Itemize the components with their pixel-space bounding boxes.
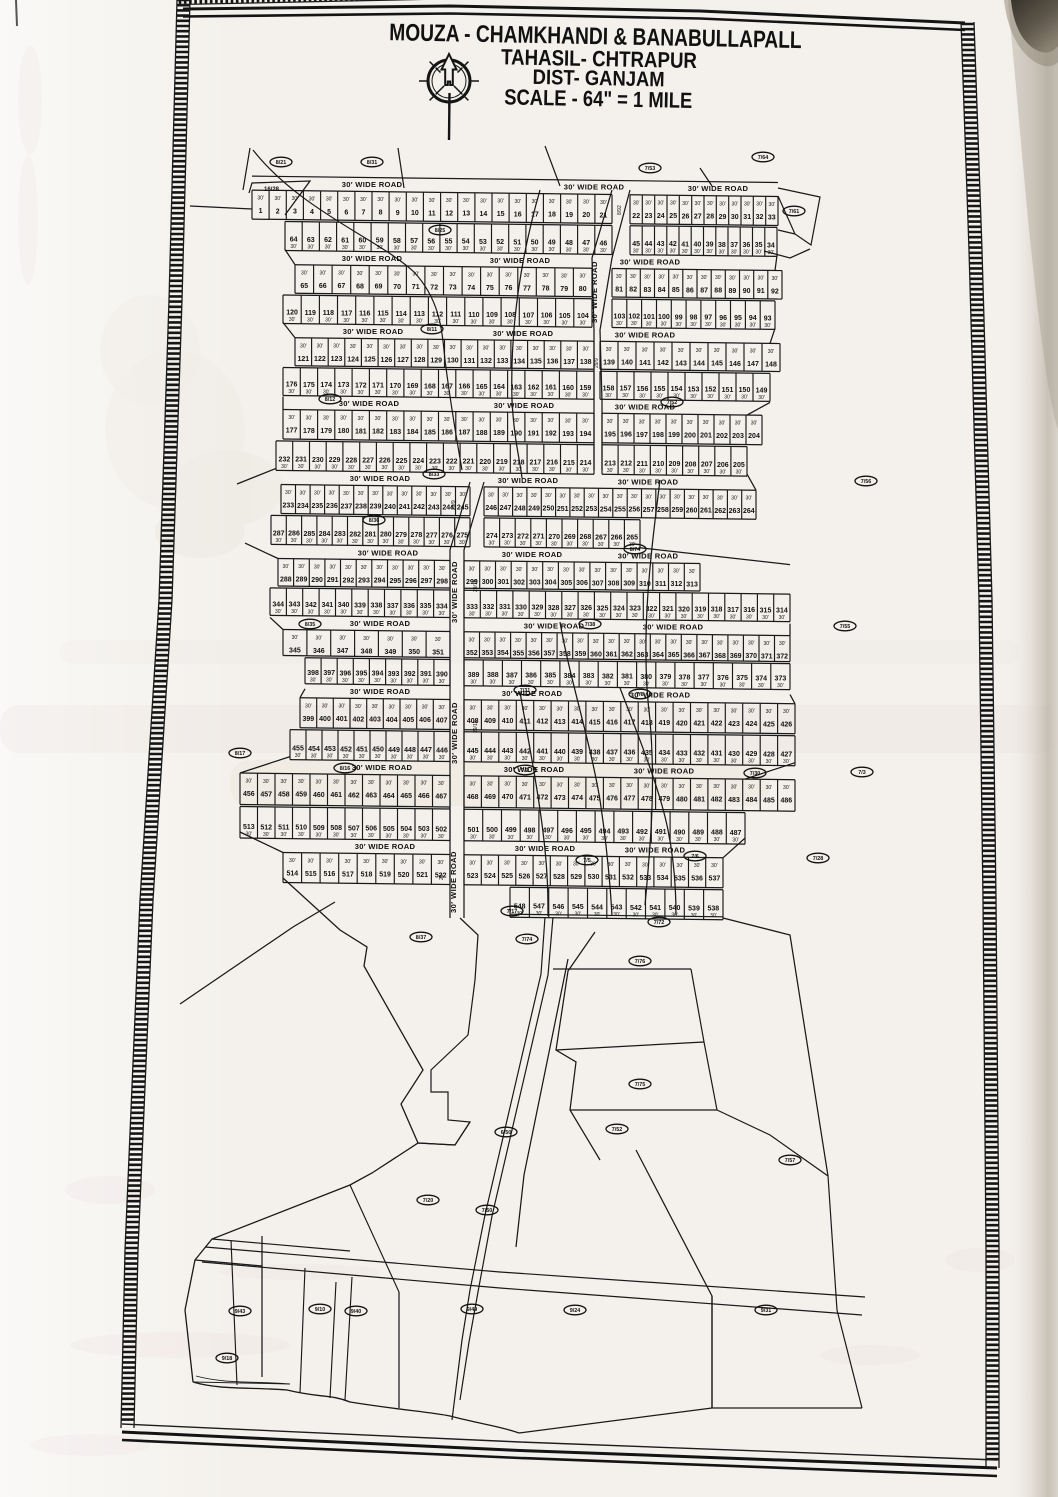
svg-text:30′: 30′ (687, 420, 694, 426)
svg-text:30′: 30′ (566, 346, 573, 352)
svg-text:30′: 30′ (732, 640, 739, 646)
svg-text:30′: 30′ (400, 345, 407, 351)
svg-text:30′: 30′ (642, 347, 649, 353)
svg-text:230: 230 (312, 457, 324, 464)
svg-text:78: 78 (542, 286, 550, 293)
svg-text:82: 82 (629, 287, 637, 294)
svg-text:30′: 30′ (766, 785, 773, 791)
svg-text:30′: 30′ (307, 317, 314, 323)
svg-text:445: 445 (467, 748, 479, 755)
svg-text:30′: 30′ (565, 418, 572, 424)
svg-text:30′: 30′ (657, 837, 664, 843)
svg-text:87: 87 (700, 288, 708, 295)
svg-text:30′: 30′ (246, 779, 253, 785)
svg-text:30′: 30′ (375, 390, 382, 396)
svg-text:346: 346 (313, 648, 325, 655)
svg-text:63: 63 (307, 237, 315, 244)
svg-text:249: 249 (528, 506, 540, 513)
svg-text:30′: 30′ (543, 320, 550, 326)
svg-text:30′: 30′ (459, 540, 466, 546)
svg-text:30′: 30′ (639, 639, 646, 645)
svg-text:128: 128 (414, 357, 426, 364)
svg-text:246: 246 (485, 505, 497, 512)
svg-text:30′: 30′ (345, 565, 352, 571)
svg-text:30′ WIDE ROAD: 30′ WIDE ROAD (494, 401, 555, 410)
svg-text:30′: 30′ (642, 862, 649, 868)
svg-text:30′: 30′ (383, 539, 390, 545)
svg-text:38: 38 (718, 242, 726, 249)
svg-text:30′: 30′ (469, 611, 476, 617)
svg-text:30′: 30′ (583, 613, 590, 619)
svg-text:470: 470 (502, 794, 514, 801)
svg-text:30′: 30′ (308, 858, 315, 864)
svg-text:219: 219 (496, 459, 508, 466)
svg-text:66: 66 (319, 283, 327, 290)
svg-text:85: 85 (672, 287, 680, 294)
svg-text:238: 238 (355, 504, 367, 511)
svg-text:282: 282 (349, 531, 361, 538)
svg-text:18: 18 (548, 212, 556, 219)
svg-text:366: 366 (683, 652, 695, 659)
svg-text:269: 269 (564, 534, 576, 541)
svg-text:546: 546 (553, 904, 565, 911)
svg-text:523: 523 (467, 873, 479, 880)
svg-text:55: 55 (445, 239, 453, 246)
svg-text:7/31: 7/31 (520, 688, 531, 694)
svg-text:399: 399 (302, 716, 314, 723)
svg-text:225: 225 (396, 458, 408, 465)
svg-text:443: 443 (502, 748, 514, 755)
svg-text:96: 96 (719, 315, 727, 322)
svg-text:354: 354 (497, 650, 509, 657)
svg-text:48: 48 (565, 240, 573, 247)
svg-text:7/72: 7/72 (654, 920, 665, 926)
svg-text:30′: 30′ (661, 708, 668, 714)
svg-text:30′: 30′ (386, 833, 393, 839)
svg-text:30′: 30′ (530, 392, 537, 398)
svg-text:30′: 30′ (594, 568, 601, 574)
svg-text:189: 189 (493, 430, 505, 437)
svg-text:30′: 30′ (706, 249, 713, 255)
svg-text:97: 97 (704, 315, 712, 322)
svg-text:30′: 30′ (720, 322, 727, 328)
svg-text:30′: 30′ (686, 640, 693, 646)
svg-text:16/28: 16/28 (264, 187, 280, 193)
svg-text:32: 32 (756, 214, 764, 221)
svg-text:30′: 30′ (394, 245, 401, 251)
svg-text:459: 459 (295, 792, 307, 799)
svg-text:30′: 30′ (549, 346, 556, 352)
svg-text:6/50: 6/50 (501, 1130, 512, 1136)
svg-text:497: 497 (542, 828, 554, 835)
svg-text:30′ WIDE ROAD: 30′ WIDE ROAD (524, 621, 585, 630)
svg-text:30′: 30′ (448, 466, 455, 472)
svg-text:30′: 30′ (421, 834, 428, 840)
svg-text:30′: 30′ (748, 785, 755, 791)
svg-text:30′: 30′ (687, 469, 694, 475)
svg-text:30′ WIDE ROAD: 30′ WIDE ROAD (615, 330, 676, 339)
svg-text:402: 402 (352, 716, 364, 723)
svg-text:500: 500 (486, 827, 498, 834)
svg-text:533: 533 (639, 875, 651, 882)
svg-text:484: 484 (746, 797, 758, 804)
svg-text:30′: 30′ (502, 612, 509, 618)
svg-text:271: 271 (533, 534, 545, 541)
svg-text:30′: 30′ (340, 416, 347, 422)
svg-text:30′: 30′ (546, 638, 553, 644)
svg-text:30′: 30′ (633, 200, 640, 206)
svg-text:174: 174 (320, 382, 332, 389)
svg-text:340: 340 (338, 602, 350, 609)
svg-text:30′: 30′ (531, 638, 538, 644)
svg-text:30′: 30′ (605, 393, 612, 399)
svg-text:510: 510 (295, 825, 307, 832)
svg-text:30′: 30′ (720, 682, 727, 688)
svg-text:30′: 30′ (316, 635, 323, 641)
svg-text:30′: 30′ (661, 784, 668, 790)
svg-text:30′ WIDE ROAD: 30′ WIDE ROAD (339, 399, 400, 408)
svg-text:30′: 30′ (496, 418, 503, 424)
svg-text:405: 405 (402, 717, 414, 724)
svg-text:30′: 30′ (351, 780, 358, 786)
svg-text:30′: 30′ (446, 198, 453, 204)
svg-text:222: 222 (446, 459, 458, 466)
svg-text:30′: 30′ (409, 391, 416, 397)
svg-text:255: 255 (614, 507, 626, 514)
svg-text:30′: 30′ (714, 348, 721, 354)
svg-text:200: 200 (684, 432, 696, 439)
svg-text:30′: 30′ (487, 273, 494, 279)
svg-text:30′: 30′ (415, 466, 422, 472)
svg-text:515: 515 (305, 871, 317, 878)
svg-text:524: 524 (484, 873, 496, 880)
svg-text:30′ WIDE ROAD: 30′ WIDE ROAD (564, 183, 625, 192)
svg-text:283: 283 (334, 531, 346, 538)
svg-text:122: 122 (314, 356, 326, 363)
svg-text:329: 329 (532, 605, 544, 612)
svg-text:30′: 30′ (306, 389, 313, 395)
svg-text:30′ WIDE ROAD: 30′ WIDE ROAD (620, 257, 681, 266)
svg-text:30′: 30′ (257, 196, 264, 202)
svg-text:51: 51 (513, 239, 521, 246)
svg-text:7/56: 7/56 (861, 479, 872, 485)
svg-text:22: 22 (632, 213, 640, 220)
svg-text:490: 490 (674, 829, 686, 836)
svg-text:30′: 30′ (671, 420, 678, 426)
svg-text:30′: 30′ (389, 610, 396, 616)
svg-text:30′: 30′ (730, 614, 737, 620)
svg-text:30′: 30′ (333, 780, 340, 786)
svg-text:303: 303 (529, 580, 541, 587)
svg-text:30′: 30′ (480, 246, 487, 252)
svg-text:462: 462 (348, 792, 360, 799)
svg-text:466: 466 (418, 793, 430, 800)
svg-text:30′: 30′ (305, 703, 312, 709)
svg-text:304: 304 (545, 580, 557, 587)
svg-text:224: 224 (412, 458, 424, 465)
svg-text:328: 328 (548, 605, 560, 612)
svg-text:106: 106 (541, 313, 553, 320)
svg-text:221: 221 (463, 459, 475, 466)
svg-text:93: 93 (764, 315, 772, 322)
svg-text:386: 386 (525, 673, 537, 680)
svg-text:30′: 30′ (484, 567, 491, 573)
svg-text:538: 538 (707, 906, 719, 913)
svg-text:30′: 30′ (582, 419, 589, 425)
svg-text:103: 103 (614, 314, 626, 321)
svg-text:325: 325 (597, 605, 609, 612)
svg-text:433: 433 (676, 750, 688, 757)
svg-text:327: 327 (564, 605, 576, 612)
svg-text:30′: 30′ (333, 344, 340, 350)
svg-text:30′: 30′ (489, 320, 496, 326)
svg-text:30′: 30′ (411, 246, 418, 252)
svg-text:30′: 30′ (697, 614, 704, 620)
svg-text:465: 465 (400, 793, 412, 800)
svg-text:487: 487 (730, 830, 742, 837)
svg-text:30′: 30′ (281, 832, 288, 838)
svg-text:30′: 30′ (639, 836, 646, 842)
svg-text:158: 158 (603, 385, 615, 392)
svg-text:81: 81 (615, 287, 623, 294)
svg-text:330: 330 (515, 604, 527, 611)
svg-text:30′: 30′ (657, 249, 664, 255)
svg-text:30′: 30′ (758, 276, 765, 282)
svg-text:406: 406 (419, 717, 431, 724)
svg-text:77: 77 (523, 285, 531, 292)
svg-text:30′: 30′ (549, 467, 556, 473)
svg-text:385: 385 (544, 673, 556, 680)
svg-text:192: 192 (545, 431, 557, 438)
svg-text:30′: 30′ (283, 564, 290, 570)
svg-text:30′: 30′ (439, 566, 446, 572)
svg-text:257: 257 (643, 507, 655, 514)
svg-text:179: 179 (320, 428, 332, 435)
svg-text:368: 368 (714, 653, 726, 660)
svg-text:508: 508 (330, 825, 342, 832)
svg-text:30′: 30′ (748, 759, 755, 765)
svg-text:30′: 30′ (480, 198, 487, 204)
svg-text:231: 231 (295, 457, 307, 464)
svg-text:30′: 30′ (678, 348, 685, 354)
svg-text:458: 458 (278, 792, 290, 799)
svg-text:29: 29 (439, 874, 445, 880)
svg-text:343: 343 (289, 602, 301, 609)
svg-text:421: 421 (693, 721, 705, 728)
svg-text:30′: 30′ (731, 249, 738, 255)
svg-text:30′: 30′ (670, 640, 677, 646)
svg-text:242: 242 (413, 504, 425, 511)
svg-text:30′: 30′ (502, 493, 509, 499)
svg-text:30′: 30′ (445, 246, 452, 252)
svg-text:30′: 30′ (288, 415, 295, 421)
svg-text:140: 140 (621, 360, 633, 367)
svg-text:30′: 30′ (517, 493, 524, 499)
svg-text:30′: 30′ (471, 319, 478, 325)
svg-text:37: 37 (730, 242, 738, 249)
svg-text:2: 2 (276, 209, 280, 216)
svg-text:30′: 30′ (338, 704, 345, 710)
svg-text:535: 535 (674, 875, 686, 882)
svg-text:30′: 30′ (306, 538, 313, 544)
svg-text:30′: 30′ (285, 490, 292, 496)
svg-text:30′: 30′ (548, 392, 555, 398)
svg-text:30′: 30′ (714, 837, 721, 843)
svg-text:517: 517 (342, 871, 354, 878)
svg-text:30′: 30′ (499, 346, 506, 352)
svg-text:30′: 30′ (609, 757, 616, 763)
svg-text:165: 165 (476, 384, 488, 391)
svg-text:30′: 30′ (735, 323, 742, 329)
svg-text:30′: 30′ (317, 344, 324, 350)
svg-text:376: 376 (717, 675, 729, 682)
svg-text:488: 488 (711, 830, 723, 837)
svg-text:30′: 30′ (281, 779, 288, 785)
svg-text:30′: 30′ (582, 468, 589, 474)
svg-text:30′: 30′ (565, 392, 572, 398)
svg-text:30′: 30′ (724, 394, 731, 400)
svg-text:302: 302 (513, 579, 525, 586)
svg-text:30′: 30′ (325, 245, 332, 251)
svg-text:30′: 30′ (682, 249, 689, 255)
svg-text:9/10: 9/10 (315, 1307, 326, 1313)
svg-text:14: 14 (480, 211, 488, 218)
svg-text:30′: 30′ (719, 201, 726, 207)
svg-text:266: 266 (611, 535, 623, 542)
svg-text:80: 80 (579, 286, 587, 293)
svg-text:468: 468 (467, 794, 479, 801)
svg-text:30′: 30′ (521, 861, 528, 867)
svg-text:365: 365 (668, 652, 680, 659)
svg-text:102: 102 (628, 314, 640, 321)
svg-text:29/19: 29/19 (473, 720, 479, 733)
svg-text:126: 126 (381, 357, 393, 364)
svg-text:56: 56 (427, 238, 435, 245)
svg-text:420: 420 (676, 720, 688, 727)
svg-text:30′: 30′ (394, 271, 401, 277)
svg-text:247: 247 (500, 505, 512, 512)
svg-text:331: 331 (499, 604, 511, 611)
svg-text:335: 335 (420, 603, 432, 610)
svg-text:286: 286 (288, 531, 300, 538)
svg-text:30′: 30′ (405, 705, 412, 711)
svg-text:141: 141 (639, 360, 651, 367)
svg-text:115: 115 (377, 311, 388, 318)
svg-text:30′: 30′ (461, 391, 468, 397)
svg-text:135: 135 (530, 359, 542, 366)
svg-text:30′: 30′ (598, 542, 605, 548)
svg-text:89: 89 (729, 288, 737, 295)
svg-text:50: 50 (531, 240, 539, 247)
svg-text:30′: 30′ (658, 201, 665, 207)
svg-text:30′: 30′ (488, 493, 495, 499)
svg-text:154: 154 (671, 386, 683, 393)
svg-text:208: 208 (685, 461, 697, 468)
svg-text:30′: 30′ (703, 495, 710, 501)
svg-text:30′: 30′ (648, 613, 655, 619)
svg-text:30′: 30′ (748, 709, 755, 715)
svg-text:534: 534 (657, 875, 669, 882)
svg-text:275: 275 (456, 533, 468, 540)
svg-text:321: 321 (662, 606, 674, 613)
svg-text:267: 267 (595, 534, 607, 541)
svg-text:545: 545 (572, 904, 584, 911)
svg-text:541: 541 (649, 905, 661, 912)
svg-text:30′: 30′ (731, 784, 738, 790)
svg-text:23: 23 (645, 213, 653, 220)
svg-text:30′: 30′ (275, 538, 282, 544)
svg-text:151: 151 (722, 387, 734, 394)
svg-text:29/19: 29/19 (473, 579, 479, 592)
svg-text:525: 525 (501, 873, 513, 880)
svg-text:40: 40 (694, 242, 702, 249)
svg-text:30′: 30′ (607, 468, 614, 474)
svg-text:169: 169 (407, 383, 419, 390)
svg-text:167: 167 (441, 384, 453, 391)
svg-text:30′: 30′ (626, 568, 633, 574)
svg-text:30′: 30′ (340, 610, 347, 616)
svg-text:461: 461 (330, 792, 342, 799)
svg-text:30′: 30′ (768, 349, 775, 355)
svg-text:289: 289 (296, 577, 308, 584)
svg-text:382: 382 (602, 673, 614, 680)
svg-text:30′: 30′ (574, 783, 581, 789)
svg-text:30′: 30′ (372, 491, 379, 497)
svg-text:134: 134 (513, 358, 525, 365)
svg-text:30′: 30′ (314, 490, 321, 496)
svg-text:136: 136 (547, 359, 559, 366)
svg-text:30′: 30′ (539, 782, 546, 788)
svg-text:30′: 30′ (392, 565, 399, 571)
svg-text:30′: 30′ (574, 494, 581, 500)
svg-text:339: 339 (354, 602, 366, 609)
svg-text:30′: 30′ (430, 492, 437, 498)
svg-text:428: 428 (763, 751, 775, 758)
svg-text:30′: 30′ (326, 859, 333, 865)
svg-text:30′: 30′ (398, 465, 405, 471)
svg-text:30′: 30′ (645, 494, 652, 500)
svg-text:30′: 30′ (352, 539, 359, 545)
svg-text:30′ WIDE ROAD: 30′ WIDE ROAD (355, 842, 416, 851)
svg-text:30′: 30′ (390, 678, 397, 684)
svg-text:506: 506 (365, 826, 377, 833)
svg-text:30′: 30′ (505, 273, 512, 279)
svg-text:8/33: 8/33 (429, 472, 440, 478)
svg-text:30′: 30′ (676, 837, 683, 843)
svg-text:157: 157 (620, 386, 632, 393)
svg-text:90: 90 (743, 288, 751, 295)
svg-text:527: 527 (536, 874, 548, 881)
svg-text:30′: 30′ (439, 611, 446, 617)
svg-text:3: 3 (293, 209, 297, 216)
svg-text:301: 301 (497, 579, 509, 586)
svg-text:30′: 30′ (359, 754, 366, 760)
svg-text:30′: 30′ (483, 346, 490, 352)
svg-text:446: 446 (436, 747, 448, 754)
svg-text:172: 172 (355, 382, 367, 389)
svg-text:317: 317 (727, 607, 739, 614)
svg-text:357: 357 (544, 651, 556, 658)
svg-text:30′: 30′ (713, 708, 720, 714)
svg-text:311: 311 (655, 581, 666, 588)
svg-text:30′: 30′ (358, 390, 365, 396)
svg-text:203: 203 (732, 433, 744, 440)
svg-text:30′: 30′ (703, 469, 710, 475)
svg-text:393: 393 (388, 671, 400, 678)
svg-text:439: 439 (571, 749, 583, 756)
svg-text:30′: 30′ (766, 759, 773, 765)
svg-text:326: 326 (580, 605, 592, 612)
